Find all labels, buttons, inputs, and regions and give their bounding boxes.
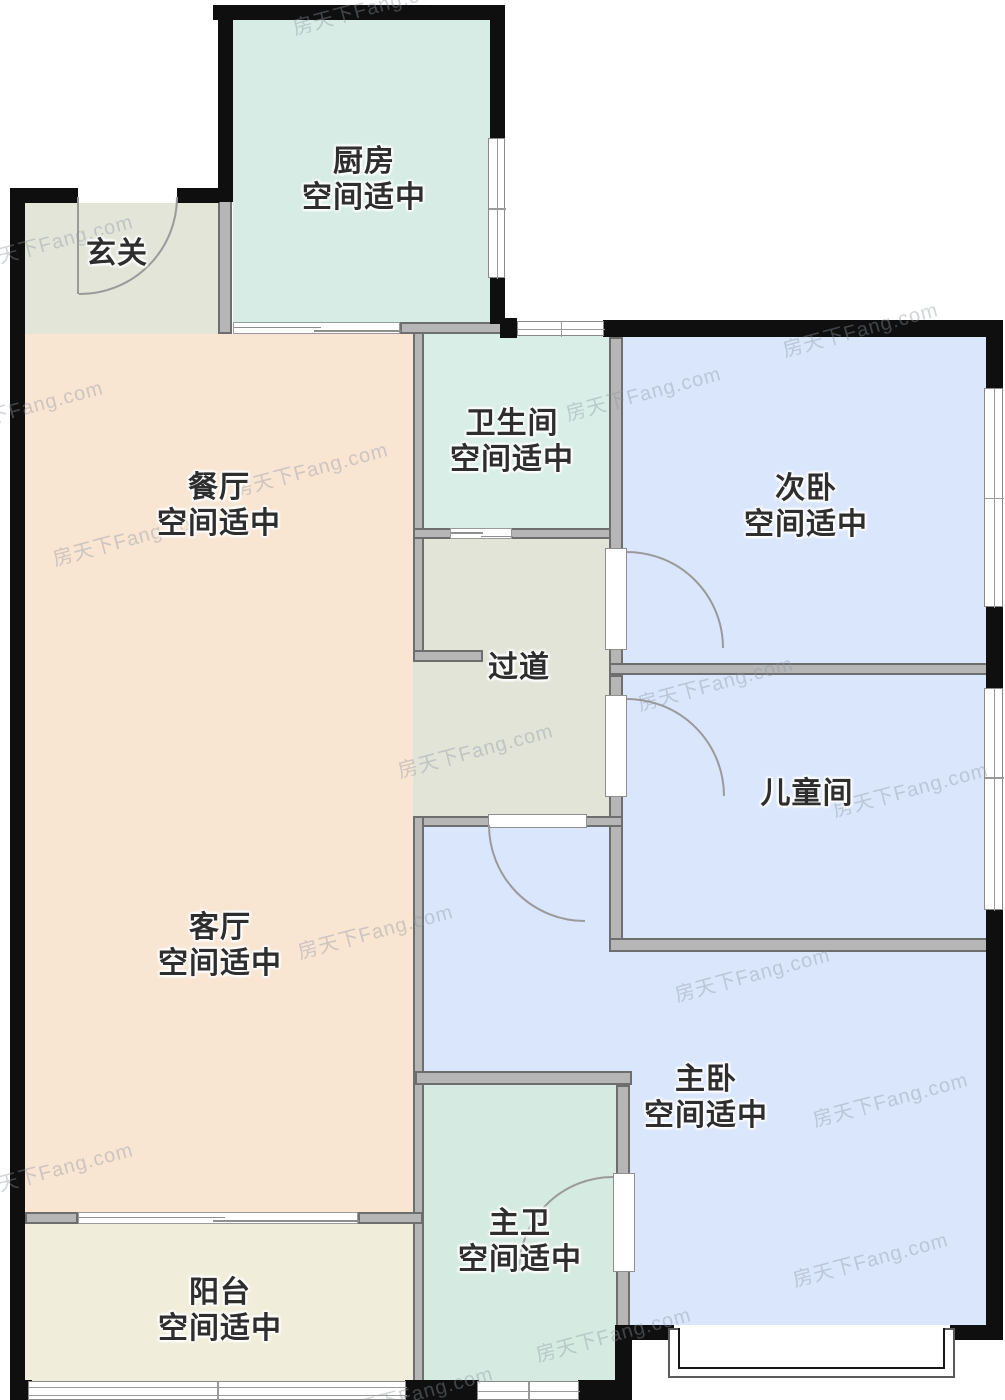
interior-wall	[400, 322, 502, 334]
room-label-masterbath: 主卫空间适中	[458, 1206, 582, 1278]
exterior-wall	[500, 318, 517, 338]
interior-wall	[609, 337, 623, 550]
interior-wall	[413, 816, 424, 1382]
interior-wall	[218, 200, 232, 334]
exterior-wall	[177, 188, 219, 203]
room-label-corridor: 过道	[488, 650, 550, 686]
window-mullion	[489, 208, 506, 210]
bay-window-inner	[678, 1328, 945, 1369]
exterior-wall	[10, 188, 25, 1400]
interior-wall	[616, 1085, 630, 1175]
room-name: 厨房	[302, 144, 426, 180]
door-leaf	[605, 548, 627, 650]
sliding-door-panel	[213, 1220, 359, 1222]
window	[984, 688, 1003, 910]
window	[984, 388, 1003, 607]
interior-wall	[358, 1212, 423, 1224]
room-size-status: 空间适中	[458, 1242, 582, 1278]
sliding-door-panel	[234, 327, 321, 329]
window	[488, 138, 505, 278]
room-label-living: 客厅空间适中	[158, 910, 282, 982]
room-size-status: 空间适中	[158, 1311, 282, 1347]
door-leaf	[613, 1173, 635, 1272]
interior-wall	[413, 816, 490, 827]
interior-wall	[413, 650, 483, 662]
room-name: 次卧	[744, 471, 868, 507]
room-size-status: 空间适中	[744, 507, 868, 543]
room-label-entry: 玄关	[86, 236, 148, 272]
interior-wall	[609, 663, 989, 675]
sliding-door-panel	[481, 536, 513, 538]
room-label-kitchen: 厨房空间适中	[302, 144, 426, 216]
room-label-kidsroom: 儿童间	[761, 776, 854, 812]
sliding-door-panel	[79, 1217, 225, 1219]
interior-wall	[609, 675, 623, 697]
interior-wall	[415, 1071, 632, 1085]
interior-wall	[25, 1212, 78, 1224]
room-floor-dining	[25, 334, 413, 812]
window-mullion	[985, 498, 1004, 500]
sliding-door	[450, 528, 512, 539]
window-mullion	[994, 689, 996, 911]
exterior-wall	[218, 5, 233, 202]
room-size-status: 空间适中	[644, 1098, 768, 1134]
sliding-door	[233, 322, 400, 334]
room-label-balcony: 阳台空间适中	[158, 1275, 282, 1347]
window-mullion	[528, 1382, 530, 1400]
room-label-bathroom: 卫生间空间适中	[450, 406, 574, 478]
room-name: 主卫	[458, 1206, 582, 1242]
room-name: 餐厅	[157, 470, 281, 506]
window-mullion	[217, 1382, 219, 1400]
interior-wall	[413, 528, 613, 539]
window	[517, 321, 604, 336]
sliding-door-panel	[451, 532, 483, 534]
window-mullion	[561, 322, 563, 337]
room-size-status: 空间适中	[302, 180, 426, 216]
exterior-wall	[578, 1380, 632, 1400]
door-leaf	[488, 814, 587, 828]
door-leaf	[605, 695, 627, 797]
exterior-wall	[950, 1325, 1003, 1340]
room-name: 过道	[488, 650, 550, 686]
room-label-dining: 餐厅空间适中	[157, 470, 281, 542]
room-name: 玄关	[86, 236, 148, 272]
room-name: 主卧	[644, 1062, 768, 1098]
room-label-master: 主卧空间适中	[644, 1062, 768, 1134]
room-name: 阳台	[158, 1275, 282, 1311]
room-label-bedroom2: 次卧空间适中	[744, 471, 868, 543]
room-name: 儿童间	[761, 776, 854, 812]
interior-wall	[413, 322, 424, 662]
room-size-status: 空间适中	[158, 946, 282, 982]
sliding-door	[78, 1212, 358, 1224]
floorplan-canvas: 玄关厨房空间适中餐厅空间适中客厅空间适中卫生间空间适中过道次卧空间适中儿童间主卧…	[0, 0, 1005, 1400]
room-size-status: 空间适中	[450, 442, 574, 478]
sliding-door-panel	[314, 330, 401, 332]
room-name: 卫生间	[450, 406, 574, 442]
interior-wall	[585, 816, 623, 827]
room-name: 客厅	[158, 910, 282, 946]
room-size-status: 空间适中	[157, 506, 281, 542]
